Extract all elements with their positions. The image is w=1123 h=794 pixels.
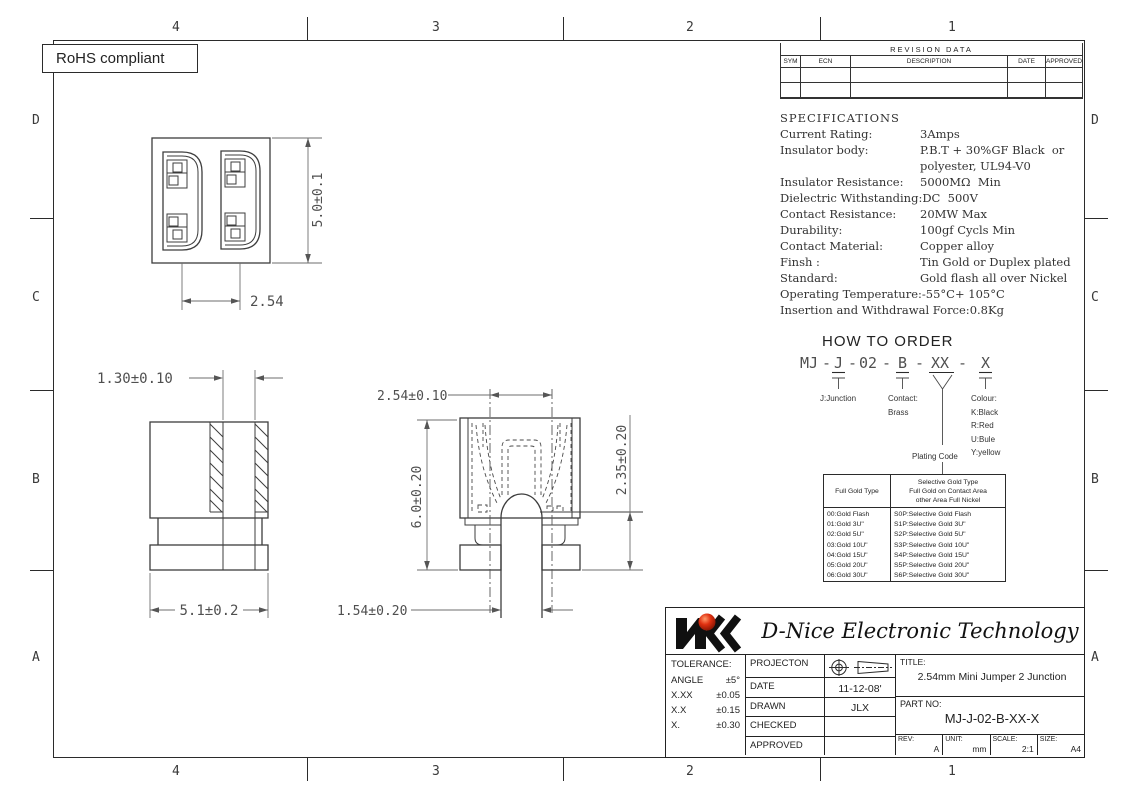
company-logo-icon: [670, 609, 756, 653]
side-view-drawing: 1.30±0.10 5.1±0.2: [85, 360, 320, 625]
svg-text:B: B: [898, 354, 907, 372]
plating-header-full: Full Gold Type: [824, 475, 891, 508]
field-approved: APPROVED: [746, 737, 895, 756]
how-to-order-title: HOW TO ORDER: [822, 333, 953, 350]
svg-text:J: J: [834, 354, 843, 372]
rev-cell: REV:A: [896, 735, 943, 755]
revision-col-header: APPROVED: [1046, 56, 1082, 68]
zone-row-label: A: [32, 650, 40, 665]
revision-table-title: REVISION DATA: [781, 43, 1082, 56]
plating-code-label: Plating Code: [912, 450, 958, 464]
spec-row: Operating Temperature:-55°C+ 105°C: [780, 286, 1082, 302]
plating-header-selective: Selective Gold Type Full Gold on Contact…: [891, 475, 1005, 508]
svg-text:02: 02: [859, 354, 877, 372]
spec-row: Insulator body:P.B.T + 30%GF Black or: [780, 142, 1082, 158]
svg-text:-: -: [958, 354, 967, 372]
zone-tick: [30, 218, 53, 219]
scale-cell: SCALE:2:1: [991, 735, 1038, 755]
colour-note: Colour: K:Black R:Red U:Bule Y:yellow: [971, 392, 1000, 460]
unit-cell: UNIT:mm: [943, 735, 990, 755]
zone-row-label: D: [1091, 113, 1099, 128]
zone-col-label: 3: [432, 764, 440, 779]
spec-row: Finsh :Tin Gold or Duplex plated: [780, 254, 1082, 270]
spec-row: polyester, UL94-V0: [780, 158, 1082, 174]
dim-top-pitch: 2.54: [250, 294, 284, 310]
zone-tick: [563, 17, 564, 40]
plating-full-column: 00:Gold Flash01:Gold 3U" 02:Gold 5U"03:G…: [824, 508, 891, 581]
field-drawn: DRAWN JLX: [746, 698, 895, 718]
dim-front-lower: 2.35±0.20: [615, 425, 630, 495]
drawing-title-cell: TITLE: 2.54mm Mini Jumper 2 Junction: [896, 655, 1084, 697]
zone-tick: [1085, 390, 1108, 391]
svg-text:XX: XX: [931, 354, 949, 372]
size-cell: SIZE:A4: [1038, 735, 1084, 755]
part-number-cell: PART NO: MJ-J-02-B-XX-X: [896, 697, 1084, 735]
drawing-sheet: 4 3 2 1 4 3 2 1 D C B A D C B A RoHS com…: [0, 0, 1123, 794]
drawing-title: 2.54mm Mini Jumper 2 Junction: [900, 671, 1084, 683]
zone-tick: [820, 758, 821, 781]
projection-symbol-icon: [828, 658, 892, 677]
junction-note: J:Junction: [820, 392, 856, 406]
zone-row-label: B: [1091, 472, 1099, 487]
contact-note: Contact: Brass: [888, 392, 918, 419]
dim-front-pin: 1.54±0.20: [337, 604, 407, 619]
zone-row-label: D: [32, 113, 40, 128]
spec-row: Dielectric Withstanding:DC 500V: [780, 190, 1082, 206]
revision-empty-cell: [781, 83, 801, 98]
spec-row: Contact Material:Copper alloy: [780, 238, 1082, 254]
dim-front-pitch: 2.54±0.10: [377, 389, 447, 404]
revision-col-header: DESCRIPTION: [851, 56, 1008, 68]
spec-row: Current Rating:3Amps: [780, 126, 1082, 142]
zone-tick: [30, 390, 53, 391]
revision-col-header: ECN: [801, 56, 851, 68]
title-block-logo-row: D-Nice Electronic Technology: [666, 608, 1084, 655]
specifications-title: SPECIFICATIONS: [780, 110, 1082, 126]
dim-front-height: 6.0±0.20: [410, 466, 425, 529]
zone-col-label: 4: [172, 20, 180, 35]
dim-side-wall: 1.30±0.10: [97, 371, 173, 387]
svg-text:-: -: [915, 354, 924, 372]
spec-row: Standard:Gold flash all over Nickel: [780, 270, 1082, 286]
zone-tick: [307, 17, 308, 40]
revision-col-header: SYM: [781, 56, 801, 68]
revision-col-header: DATE: [1008, 56, 1046, 68]
plating-code-table: Full Gold Type Selective Gold Type Full …: [823, 474, 1006, 582]
zone-col-label: 2: [686, 20, 694, 35]
dim-top-height: 5.0±0.1: [311, 173, 326, 228]
zone-row-label: C: [32, 290, 40, 305]
zone-col-label: 4: [172, 764, 180, 779]
revision-table: REVISION DATA SYM ECN DESCRIPTION DATE A…: [780, 43, 1083, 99]
svg-text:-: -: [822, 354, 831, 372]
zone-row-label: B: [32, 472, 40, 487]
title-block: D-Nice Electronic Technology TOLERANCE: …: [665, 607, 1085, 758]
zone-col-label: 1: [948, 20, 956, 35]
front-view-drawing: 2.54±0.10 6.0±0.20 2.35±0.20 1.54±0.20: [335, 375, 655, 645]
field-projection: PROJECTON: [746, 655, 895, 678]
zone-tick: [1085, 218, 1108, 219]
zone-tick: [563, 758, 564, 781]
zone-tick: [307, 758, 308, 781]
field-checked: CHECKED: [746, 717, 895, 737]
svg-text:-: -: [848, 354, 857, 372]
part-number: MJ-J-02-B-XX-X: [900, 711, 1084, 726]
svg-text:MJ: MJ: [800, 354, 818, 372]
revision-empty-cell: [781, 68, 801, 83]
svg-text:-: -: [882, 354, 891, 372]
zone-tick: [30, 570, 53, 571]
plating-selective-column: S0P:Selective Gold FlashS1P:Selective Go…: [891, 508, 1005, 581]
title-block-fields: PROJECTON: [746, 655, 896, 755]
zone-col-label: 3: [432, 20, 440, 35]
spec-row: Insertion and Withdrawal Force:0.8Kg: [780, 302, 1082, 318]
zone-row-label: A: [1091, 650, 1099, 665]
zone-tick: [820, 17, 821, 40]
dim-side-width: 5.1±0.2: [179, 603, 238, 619]
top-view-drawing: 5.0±0.1 2.54: [140, 130, 335, 320]
company-name: D-Nice Electronic Technology: [756, 619, 1084, 643]
specifications-block: SPECIFICATIONS Current Rating:3Amps Insu…: [780, 110, 1082, 318]
field-date: DATE 11-12-08': [746, 678, 895, 698]
tolerance-cell: TOLERANCE: ANGLE±5° X.XX±0.05 X.X±0.15 X…: [666, 655, 746, 755]
zone-col-label: 1: [948, 764, 956, 779]
spec-row: Durability:100gf Cycls Min: [780, 222, 1082, 238]
zone-tick: [1085, 570, 1108, 571]
svg-text:X: X: [981, 354, 990, 372]
rohs-badge: RoHS compliant: [42, 44, 198, 73]
spec-row: Insulator Resistance:5000MΩ Min: [780, 174, 1082, 190]
zone-row-label: C: [1091, 290, 1099, 305]
zone-col-label: 2: [686, 764, 694, 779]
spec-row: Contact Resistance:20MW Max: [780, 206, 1082, 222]
